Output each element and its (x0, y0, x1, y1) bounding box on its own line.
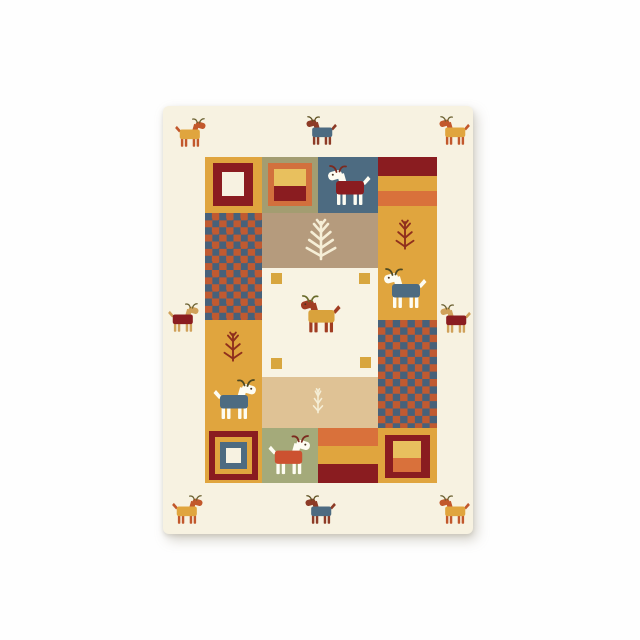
orange-half (393, 458, 421, 472)
corner-square (360, 357, 371, 368)
corner-square (271, 358, 282, 369)
center-goat-figure (299, 295, 342, 334)
tree-branches (224, 333, 241, 361)
amber-stripe (318, 446, 378, 464)
taupe-block-pine-tree-icon (303, 218, 339, 262)
tan-block-sprig-icon (307, 385, 329, 417)
white-center (226, 448, 241, 463)
right-checkerboard-block (378, 320, 437, 428)
bottom-left-nested-square-block (205, 428, 262, 483)
corner-square (271, 273, 282, 284)
amber-half (274, 169, 306, 186)
tree-branches (307, 220, 335, 259)
border-goat-middle-left-figure (167, 303, 200, 333)
border-goat-top-left-figure (174, 118, 207, 148)
amber-half (393, 441, 421, 458)
rug (163, 106, 473, 534)
border-goat-bottom-right-figure (438, 495, 471, 525)
bottom-stripes-block (318, 428, 378, 483)
blue-block-goat-figure (326, 165, 372, 207)
left-column-pine-tree-icon (220, 329, 246, 365)
border-goat-bottom-left-figure (171, 495, 204, 525)
border-goat-middle-right-figure (439, 304, 472, 334)
sage-block-goat-figure (267, 435, 312, 476)
cream-center (222, 172, 244, 196)
right-maroon-band (378, 157, 437, 176)
maroon-half (274, 186, 306, 201)
border-goat-top-right-figure (438, 116, 471, 146)
top-olive-split-square-block (262, 157, 318, 213)
top-left-framed-square-block (205, 157, 262, 213)
tree-branches (396, 221, 413, 249)
right-column-goat-figure (382, 268, 428, 310)
left-column-goat-figure (212, 379, 258, 421)
border-goat-top-center-figure (305, 116, 338, 146)
right-column-pine-tree-icon (392, 217, 418, 253)
right-orange-band (378, 191, 437, 206)
border-goat-bottom-center-figure (304, 495, 337, 525)
bottom-right-framed-square-block (378, 428, 437, 483)
product-photo-canvas (0, 0, 640, 640)
corner-square (359, 273, 370, 284)
tree-branches (314, 389, 323, 413)
left-checkerboard-block (205, 213, 262, 320)
maroon-stripe (318, 464, 378, 483)
right-amber-band (378, 176, 437, 191)
